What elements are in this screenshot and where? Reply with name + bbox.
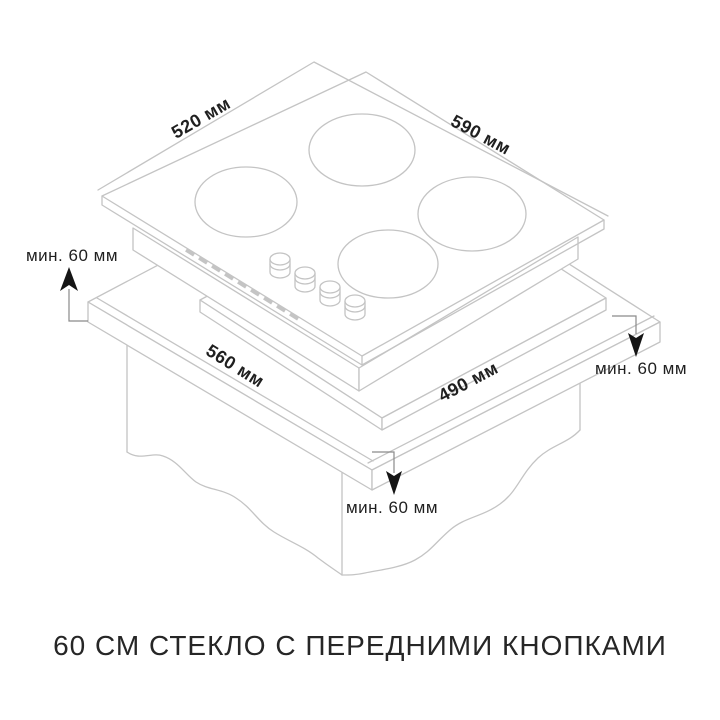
clearance-left-label: мин. 60 мм bbox=[26, 246, 118, 265]
installation-diagram: 520 мм 590 мм 560 мм 490 мм мин. 60 мм м… bbox=[0, 0, 720, 720]
knob-2 bbox=[295, 267, 315, 292]
installation-diagram-page: 520 мм 590 мм 560 мм 490 мм мин. 60 мм м… bbox=[0, 0, 720, 720]
clearance-left-leader bbox=[69, 289, 88, 321]
dim-label-hob-depth: 520 мм bbox=[168, 93, 234, 143]
diagram-caption: 60 СМ СТЕКЛО С ПЕРЕДНИМИ КНОПКАМИ bbox=[53, 630, 667, 661]
knob-4 bbox=[345, 295, 365, 320]
knob-1 bbox=[270, 253, 290, 278]
clearance-front-label: мин. 60 мм bbox=[346, 498, 438, 517]
clearance-right-label: мин. 60 мм bbox=[595, 359, 687, 378]
cabinet-left-torn-edge bbox=[127, 452, 342, 575]
knob-3 bbox=[320, 281, 340, 306]
up-arrow-icon bbox=[60, 267, 78, 291]
